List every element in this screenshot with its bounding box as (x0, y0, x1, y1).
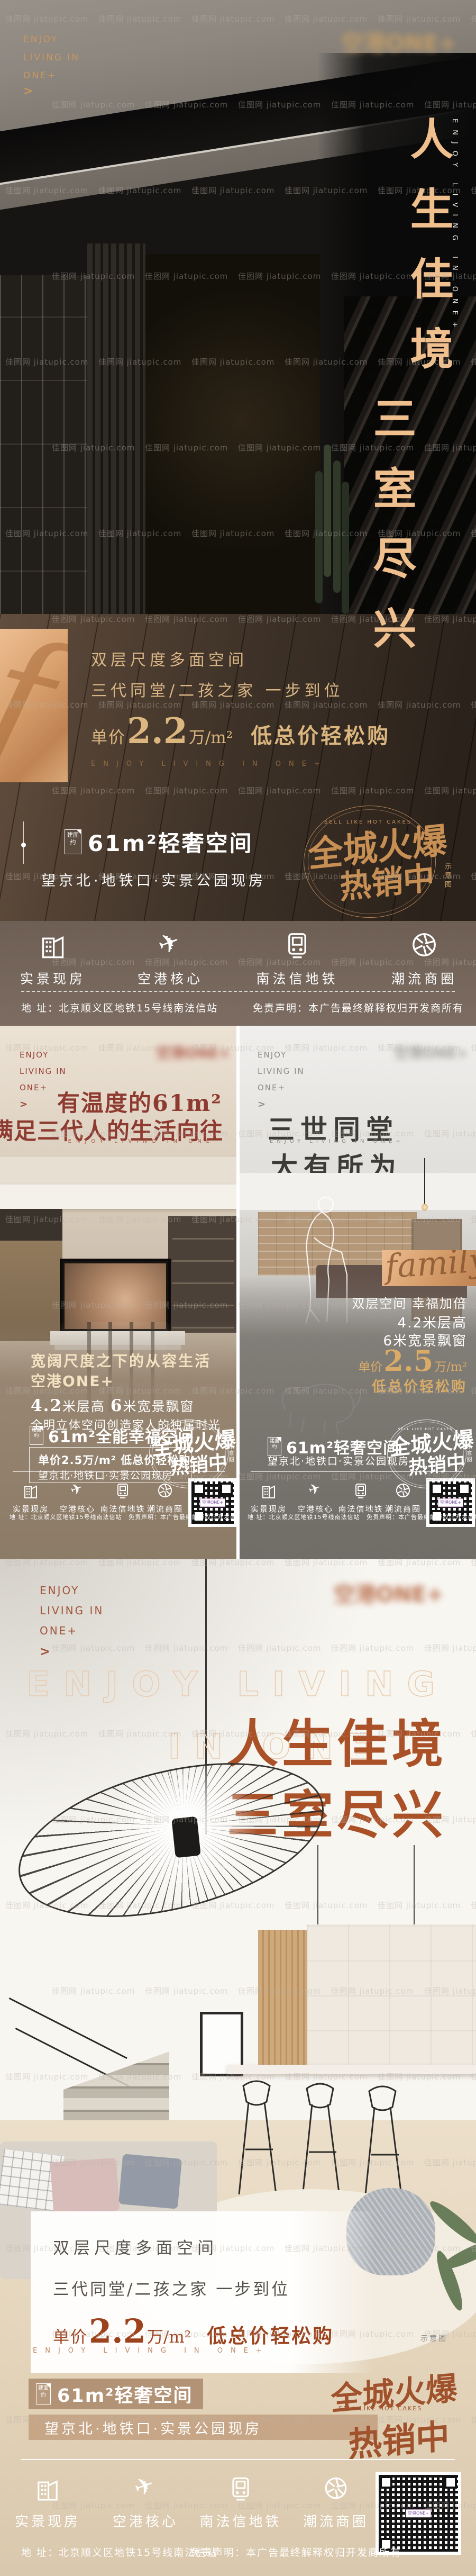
footer-divider (21, 2459, 455, 2460)
price-value: 2.5 (383, 1346, 433, 1375)
qr-center-logo: 空港ONE+ (200, 1498, 225, 1507)
address-line: 地 址：北京顺义区地铁15号线南法信站 (10, 1513, 122, 1521)
price-value: 2.2 (127, 713, 188, 748)
qr-finder (220, 1483, 233, 1495)
chevron-right-icon: > (20, 1099, 28, 1110)
brand-line: LIVING IN (20, 1063, 67, 1080)
price-prefix: 单价 (53, 2324, 88, 2347)
building-icon (260, 1482, 277, 1500)
location-line: 望京北·地铁口·实景公园现房 (41, 869, 266, 890)
feature-item: 实景现房 (0, 2475, 95, 2530)
selling-point-1: 双层尺度多面空间 (91, 647, 248, 670)
project-logo: 空港ONE+ (394, 1042, 468, 1062)
photo-glass-cabinet (0, 275, 87, 635)
photo-pillow-gray (118, 2154, 182, 2209)
num-width: 6 (111, 1396, 123, 1415)
selling-point-3: 4.2米层高 6米宽景飘窗 (31, 1396, 194, 1415)
bar-stools (227, 2075, 418, 2202)
price-line: 单价 2.5 万/m² (358, 1346, 467, 1375)
price-suffix: 低总价轻松购 (372, 1375, 467, 1396)
brand-tagline: ENJOY LIVING IN ONE+ (40, 1580, 104, 1641)
address-line: 地 址：北京顺义区地铁15号线南法信站 (248, 1513, 360, 1521)
brand-tagline: ENJOY LIVING IN ONE+ (258, 1047, 305, 1096)
photo-stair-rail (9, 1997, 127, 2059)
brand-line: ENJOY (40, 1580, 104, 1601)
price-value: 2.2 (89, 2315, 146, 2348)
address-line: 地 址：北京顺义区地铁15号线南法信站 (21, 1000, 218, 1015)
feature-item: 潮流商圈 (139, 1482, 191, 1514)
lamp-hub (171, 1816, 200, 1858)
aperture-icon (395, 1482, 411, 1500)
feature-item: 实景现房 (0, 930, 106, 988)
aperture-icon (410, 930, 438, 963)
stamp-line2: 热销中 (348, 2409, 450, 2467)
brand-line: LIVING IN (258, 1063, 305, 1080)
address-line: 地 址：北京顺义区地铁15号线南法信站 (21, 2545, 218, 2559)
photo-pendant-light (424, 1158, 425, 1205)
photo-wood-slats (258, 1930, 307, 2066)
chevron-right-icon: > (40, 1644, 50, 1659)
poster-series-preview: ENJOY LIVING IN ONE+ > 空港ONE+ 人生佳境 三室尽兴 … (0, 0, 476, 2576)
copper-decor-bar: f (0, 629, 68, 782)
stamp-line2: 热销中 (170, 1452, 228, 1477)
vertical-title-2: 三室尽兴 (369, 396, 413, 692)
photo-cactus (324, 445, 331, 577)
price-prefix: 单价 (91, 724, 126, 748)
price-unit: 万/m² (434, 1357, 467, 1375)
card-line-1: 双层尺度多面空间 (53, 2235, 218, 2258)
selling-point-1: 双层空间 幸福加倍 (352, 1293, 467, 1312)
selling-point-2: 空港ONE+ (31, 1370, 114, 1391)
decor-dot (21, 843, 26, 847)
price-prefix: 单价 (358, 1357, 382, 1375)
disclaimer-line: 免责声明：本广告最终解释权归开发商所有 (190, 2545, 401, 2559)
area-text: 61m²轻奢空间 (57, 2381, 193, 2408)
train-icon (283, 930, 312, 963)
price-unit: 万/m² (147, 2324, 191, 2347)
area-badge: 建面约 (30, 1426, 43, 1445)
aperture-icon (323, 2475, 349, 2505)
txt: 米层高 (62, 1399, 111, 1414)
price-suffix: 低总价轻松购 (207, 2320, 334, 2348)
qr-finder (193, 1483, 205, 1495)
disclaimer-line: 免责声明：本广告最终解释权归开发商所有 (367, 1513, 476, 1521)
poster1-dark: ENJOY LIVING IN ONE+ > 空港ONE+ 人生佳境 三室尽兴 … (0, 0, 476, 1026)
feature-item: ✈ 空港核心 (98, 2475, 193, 2530)
brand-tagline: ENJOY LIVING IN ONE+ (23, 31, 80, 85)
hot-sale-stamp: SELL LIKE HOT CAKES 全城火爆 热销中 (294, 802, 442, 921)
photo-shelf (168, 1216, 238, 1333)
train-icon (227, 2475, 254, 2505)
feature-item: ✈ 空港核心 (117, 930, 223, 988)
poster-gutter (236, 1026, 240, 1559)
english-spaced-line: ENJOY LIVING IN ONE+ (33, 2347, 270, 2355)
brand-line: ENJOY (23, 31, 80, 49)
qr-finder (431, 1483, 443, 1495)
brand-line: LIVING IN (40, 1601, 104, 1621)
feature-item: 实景现房 (4, 1482, 57, 1514)
qr-finder (380, 2476, 392, 2489)
feature-label: 南法信地铁 (244, 969, 350, 988)
photo-wall (0, 1157, 238, 1187)
english-spaced-line: ENJOY LIVING IN ONE+ (270, 1138, 404, 1144)
stamp-english: SELL LIKE HOT CAKES (338, 2405, 422, 2412)
train-icon (352, 1482, 369, 1500)
poster2-right-gray: ENJOY LIVING IN ONE+ > 空港ONE+ 三世同堂 ENJOY… (238, 1026, 476, 1559)
photo-pillow-pink (50, 2158, 120, 2215)
english-spaced-line: ENJOY LIVING IN ONE+ (91, 760, 328, 768)
script-family: family (384, 1250, 476, 1286)
photo-counter (227, 2065, 476, 2074)
brand-line: LIVING IN (23, 49, 80, 67)
num-height: 4.2 (31, 1396, 62, 1415)
brand-line: ONE+ (40, 1621, 104, 1641)
disclaimer-line: 免责声明：本广告最终解释权归开发商所有 (129, 1513, 238, 1521)
script-flourish: f (0, 629, 68, 782)
stamp-line2: 热销中 (339, 862, 435, 904)
feature-item: ✈ 空港核心 (51, 1482, 104, 1514)
feature-label: 潮流商圈 (288, 2511, 383, 2530)
photo-slat-wall (87, 243, 145, 614)
schematic-note: 示意图 (442, 863, 452, 890)
photo-mezzanine (0, 1185, 238, 1209)
poster2-left-warm: ENJOY LIVING IN ONE+ > 空港ONE+ 有温度的61m² 满… (0, 1026, 238, 1559)
dashed-divider (21, 991, 455, 992)
area-badge: 建面约 (65, 829, 81, 854)
schematic-note: 示意图 (420, 2333, 447, 2344)
txt: 米宽景飘窗 (123, 1399, 194, 1414)
chevron-right-icon: > (258, 1099, 266, 1110)
qr-center-logo: 空港ONE+ (406, 2509, 431, 2518)
qr-finder (458, 1483, 471, 1495)
feature-item: 潮流商圈 (371, 930, 476, 988)
project-logo: 空港ONE+ (341, 25, 452, 58)
feature-label: 实景现房 (0, 2511, 95, 2530)
feature-item: 南法信地铁 (193, 2475, 288, 2530)
feature-label: 南法信地铁 (193, 2511, 288, 2530)
train-icon (114, 1482, 131, 1500)
photo-white-cabinets (307, 1924, 476, 2066)
area-line: 建面约 61m²轻奢空间 (65, 826, 253, 858)
brand-line: ONE+ (258, 1080, 305, 1096)
price-suffix: 低总价轻松购 (251, 719, 390, 749)
building-icon (39, 930, 67, 963)
schematic-note: 示意图 (226, 1444, 234, 1463)
feature-label: 潮流商圈 (371, 969, 476, 988)
vertical-title-1: 人生佳境 (406, 116, 450, 413)
stamp-line2: 热销中 (408, 1452, 466, 1477)
feature-label: 实景现房 (0, 969, 106, 988)
area-badge: 建面约 (36, 2383, 51, 2405)
vertical-english-title: ENJOY LIVING IN ONE+ (451, 119, 459, 627)
building-icon (34, 2475, 61, 2505)
qr-center-logo: 空港ONE+ (438, 1498, 463, 1507)
brand-line: ENJOY (258, 1047, 305, 1063)
price-unit: 万/m² (189, 724, 233, 748)
copper-decor-block: family (382, 1250, 476, 1286)
english-spaced-line: ENJOY LIVING IN ONE (68, 1138, 214, 1144)
card-line-2: 三代同堂/二孩之家 一步到位 (53, 2276, 290, 2300)
project-logo: 空港ONE+ (333, 1577, 444, 1608)
photo-kitchen (0, 1209, 62, 1341)
location-line: 望京北·地铁口·实景公园现房 (44, 2417, 262, 2438)
schematic-note: 示意图 (464, 1444, 472, 1463)
feature-item: 实景现房 (242, 1482, 295, 1514)
brand-line: ONE+ (23, 67, 80, 85)
selling-point-1: 宽阔尺度之下的从容生活 (31, 1350, 211, 1371)
footer-divider (251, 1471, 463, 1472)
selling-point-2: 4.2米层高 (398, 1312, 467, 1332)
poster3-light: ENJOY LIVING IN ONE+ > 空港ONE+ ENJOY LIVI… (0, 1559, 476, 2576)
price-line: 单价 2.2 万/m² 低总价轻松购 (91, 713, 390, 749)
chevron-right-icon: > (23, 85, 33, 98)
poster1-footer: 实景现房 ✈ 空港核心 南法信地铁 潮流商圈 地 址：北京顺义区地铁15号线南法… (0, 921, 476, 1026)
area-block: 建面约 61m²轻奢空间 (29, 2379, 203, 2409)
price-line: 单价 2.2 万/m² 低总价轻松购 (53, 2315, 334, 2348)
qr-finder (444, 2476, 457, 2489)
photo-corridor (145, 254, 320, 625)
footer-divider (13, 1471, 225, 1472)
project-logo: 空港ONE+ (156, 1042, 230, 1062)
feature-item: 潮流商圈 (377, 1482, 429, 1514)
area-text: 61m²轻奢空间 (88, 826, 253, 858)
qr-code: 空港ONE+ (376, 2472, 461, 2555)
disclaimer-line: 免责声明：本广告最终解释权归开发商所有 (253, 1000, 464, 1015)
location-strip: 望京北·地铁口·实景公园现房 (29, 2415, 378, 2440)
outline-english-1: ENJOY LIVING (26, 1665, 448, 1704)
building-icon (22, 1482, 39, 1500)
selling-point-2: 三代同堂/二孩之家 一步到位 (91, 677, 344, 701)
aperture-icon (157, 1482, 173, 1500)
feature-item: ✈ 空港核心 (289, 1482, 342, 1514)
brand-line: ENJOY (20, 1047, 67, 1063)
feature-item: 潮流商圈 (288, 2475, 383, 2530)
feature-item: 南法信地铁 (244, 930, 350, 988)
tv-screen-family (65, 1263, 166, 1329)
